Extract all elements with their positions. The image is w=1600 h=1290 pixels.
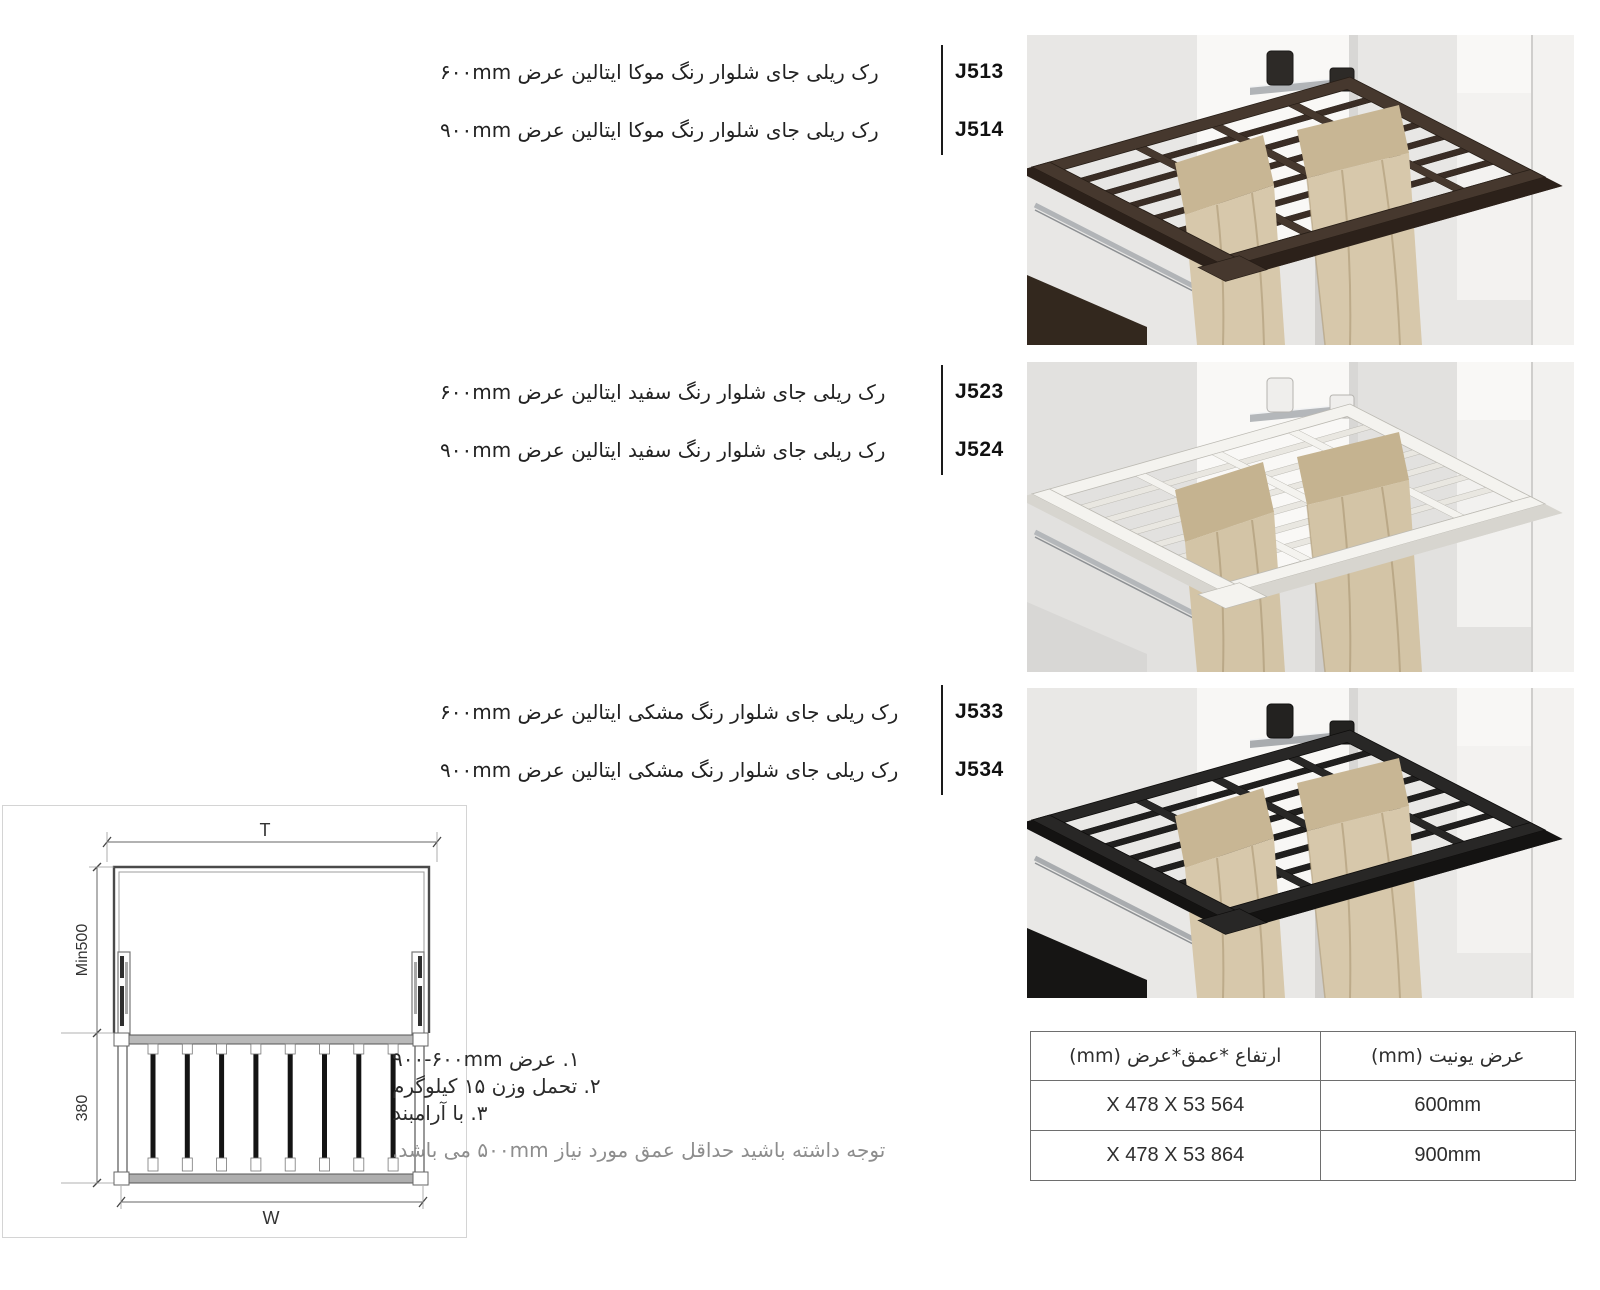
pants-rack-illustration-black [1027, 688, 1574, 998]
pants-rack-photo-white [1027, 362, 1574, 672]
product-description: رک ریلی جای شلوار رنگ مشکی ایتالین عرض ۶… [440, 695, 929, 729]
product-description: رک ریلی جای شلوار رنگ سفید ایتالین عرض ۹… [440, 433, 929, 467]
spec-table-row: 600mm 564 X 478 X 53 [1031, 1081, 1576, 1131]
spec-header-unit-width: عرض یونیت (mm) [1320, 1032, 1575, 1081]
rack-hanging-bars [148, 1044, 398, 1171]
pants-rack-illustration-white [1027, 362, 1574, 672]
product-code: J524 [955, 433, 1004, 467]
product-row: رک ریلی جای شلوار رنگ سفید ایتالین عرض ۹… [440, 433, 993, 467]
product-group-mocha: رک ریلی جای شلوار رنگ موکا ایتالین عرض ۶… [440, 45, 993, 157]
product-description: رک ریلی جای شلوار رنگ موکا ایتالین عرض ۶… [440, 55, 929, 89]
spec-cell-unit-width: 900mm [1320, 1131, 1575, 1181]
product-row: رک ریلی جای شلوار رنگ موکا ایتالین عرض ۹… [440, 113, 993, 147]
dim-label-min500: Min500 [74, 924, 91, 977]
product-code: J523 [955, 375, 1004, 409]
product-code: J533 [955, 695, 1004, 729]
product-description: رک ریلی جای شلوار رنگ سفید ایتالین عرض ۶… [440, 375, 929, 409]
dim-label-380: 380 [74, 1095, 91, 1122]
product-description: رک ریلی جای شلوار رنگ موکا ایتالین عرض ۹… [440, 113, 929, 147]
pants-rack-photo-mocha [1027, 35, 1574, 345]
pants-rack-illustration-mocha [1027, 35, 1574, 345]
technical-drawing: T Min500 380 [2, 805, 467, 1238]
product-group-black: رک ریلی جای شلوار رنگ مشکی ایتالین عرض ۶… [440, 685, 993, 797]
catalog-page: { "products": [ { "items": [ {"code": "J… [0, 0, 1600, 1290]
spec-cell-dimensions: 864 X 478 X 53 [1031, 1131, 1321, 1181]
note-line: ۲. تحمل وزن ۱۵ کیلوگرم [392, 1073, 992, 1100]
spec-cell-unit-width: 600mm [1320, 1081, 1575, 1131]
product-group-white: رک ریلی جای شلوار رنگ سفید ایتالین عرض ۶… [440, 365, 993, 477]
product-row: رک ریلی جای شلوار رنگ موکا ایتالین عرض ۶… [440, 55, 993, 89]
product-row: رک ریلی جای شلوار رنگ مشکی ایتالین عرض ۶… [440, 695, 993, 729]
spec-table-row: 900mm 864 X 478 X 53 [1031, 1131, 1576, 1181]
notes: ۱. عرض ‪۹۰۰-۶۰۰mm‬ ۲. تحمل وزن ۱۵ کیلوگر… [392, 1046, 992, 1163]
product-code: J514 [955, 113, 1004, 147]
dimension-diagram: T Min500 380 [3, 806, 466, 1237]
product-row: رک ریلی جای شلوار رنگ مشکی ایتالین عرض ۹… [440, 753, 993, 787]
spec-table-header-row: عرض یونیت (mm) ارتفاع *عمق*عرض (mm) [1031, 1032, 1576, 1081]
product-code: J534 [955, 753, 1004, 787]
product-row: رک ریلی جای شلوار رنگ سفید ایتالین عرض ۶… [440, 375, 993, 409]
pants-rack-photo-black [1027, 688, 1574, 998]
dim-label-w: W [263, 1208, 280, 1228]
product-description: رک ریلی جای شلوار رنگ مشکی ایتالین عرض ۹… [440, 753, 929, 787]
spec-table: عرض یونیت (mm) ارتفاع *عمق*عرض (mm) 600m… [1030, 1031, 1576, 1181]
note-line: ۳. با آرامبند [392, 1100, 992, 1127]
slide-rail-left [118, 952, 130, 1036]
spec-header-dimensions: ارتفاع *عمق*عرض (mm) [1031, 1032, 1321, 1081]
dim-label-t: T [260, 820, 271, 840]
slide-rail-right [412, 952, 424, 1036]
note-line: ۱. عرض ‪۹۰۰-۶۰۰mm‬ [392, 1046, 992, 1073]
product-code: J513 [955, 55, 1004, 89]
spec-cell-dimensions: 564 X 478 X 53 [1031, 1081, 1321, 1131]
depth-warning: توجه داشته باشید حداقل عمق مورد نیاز ۵۰۰… [392, 1137, 992, 1163]
